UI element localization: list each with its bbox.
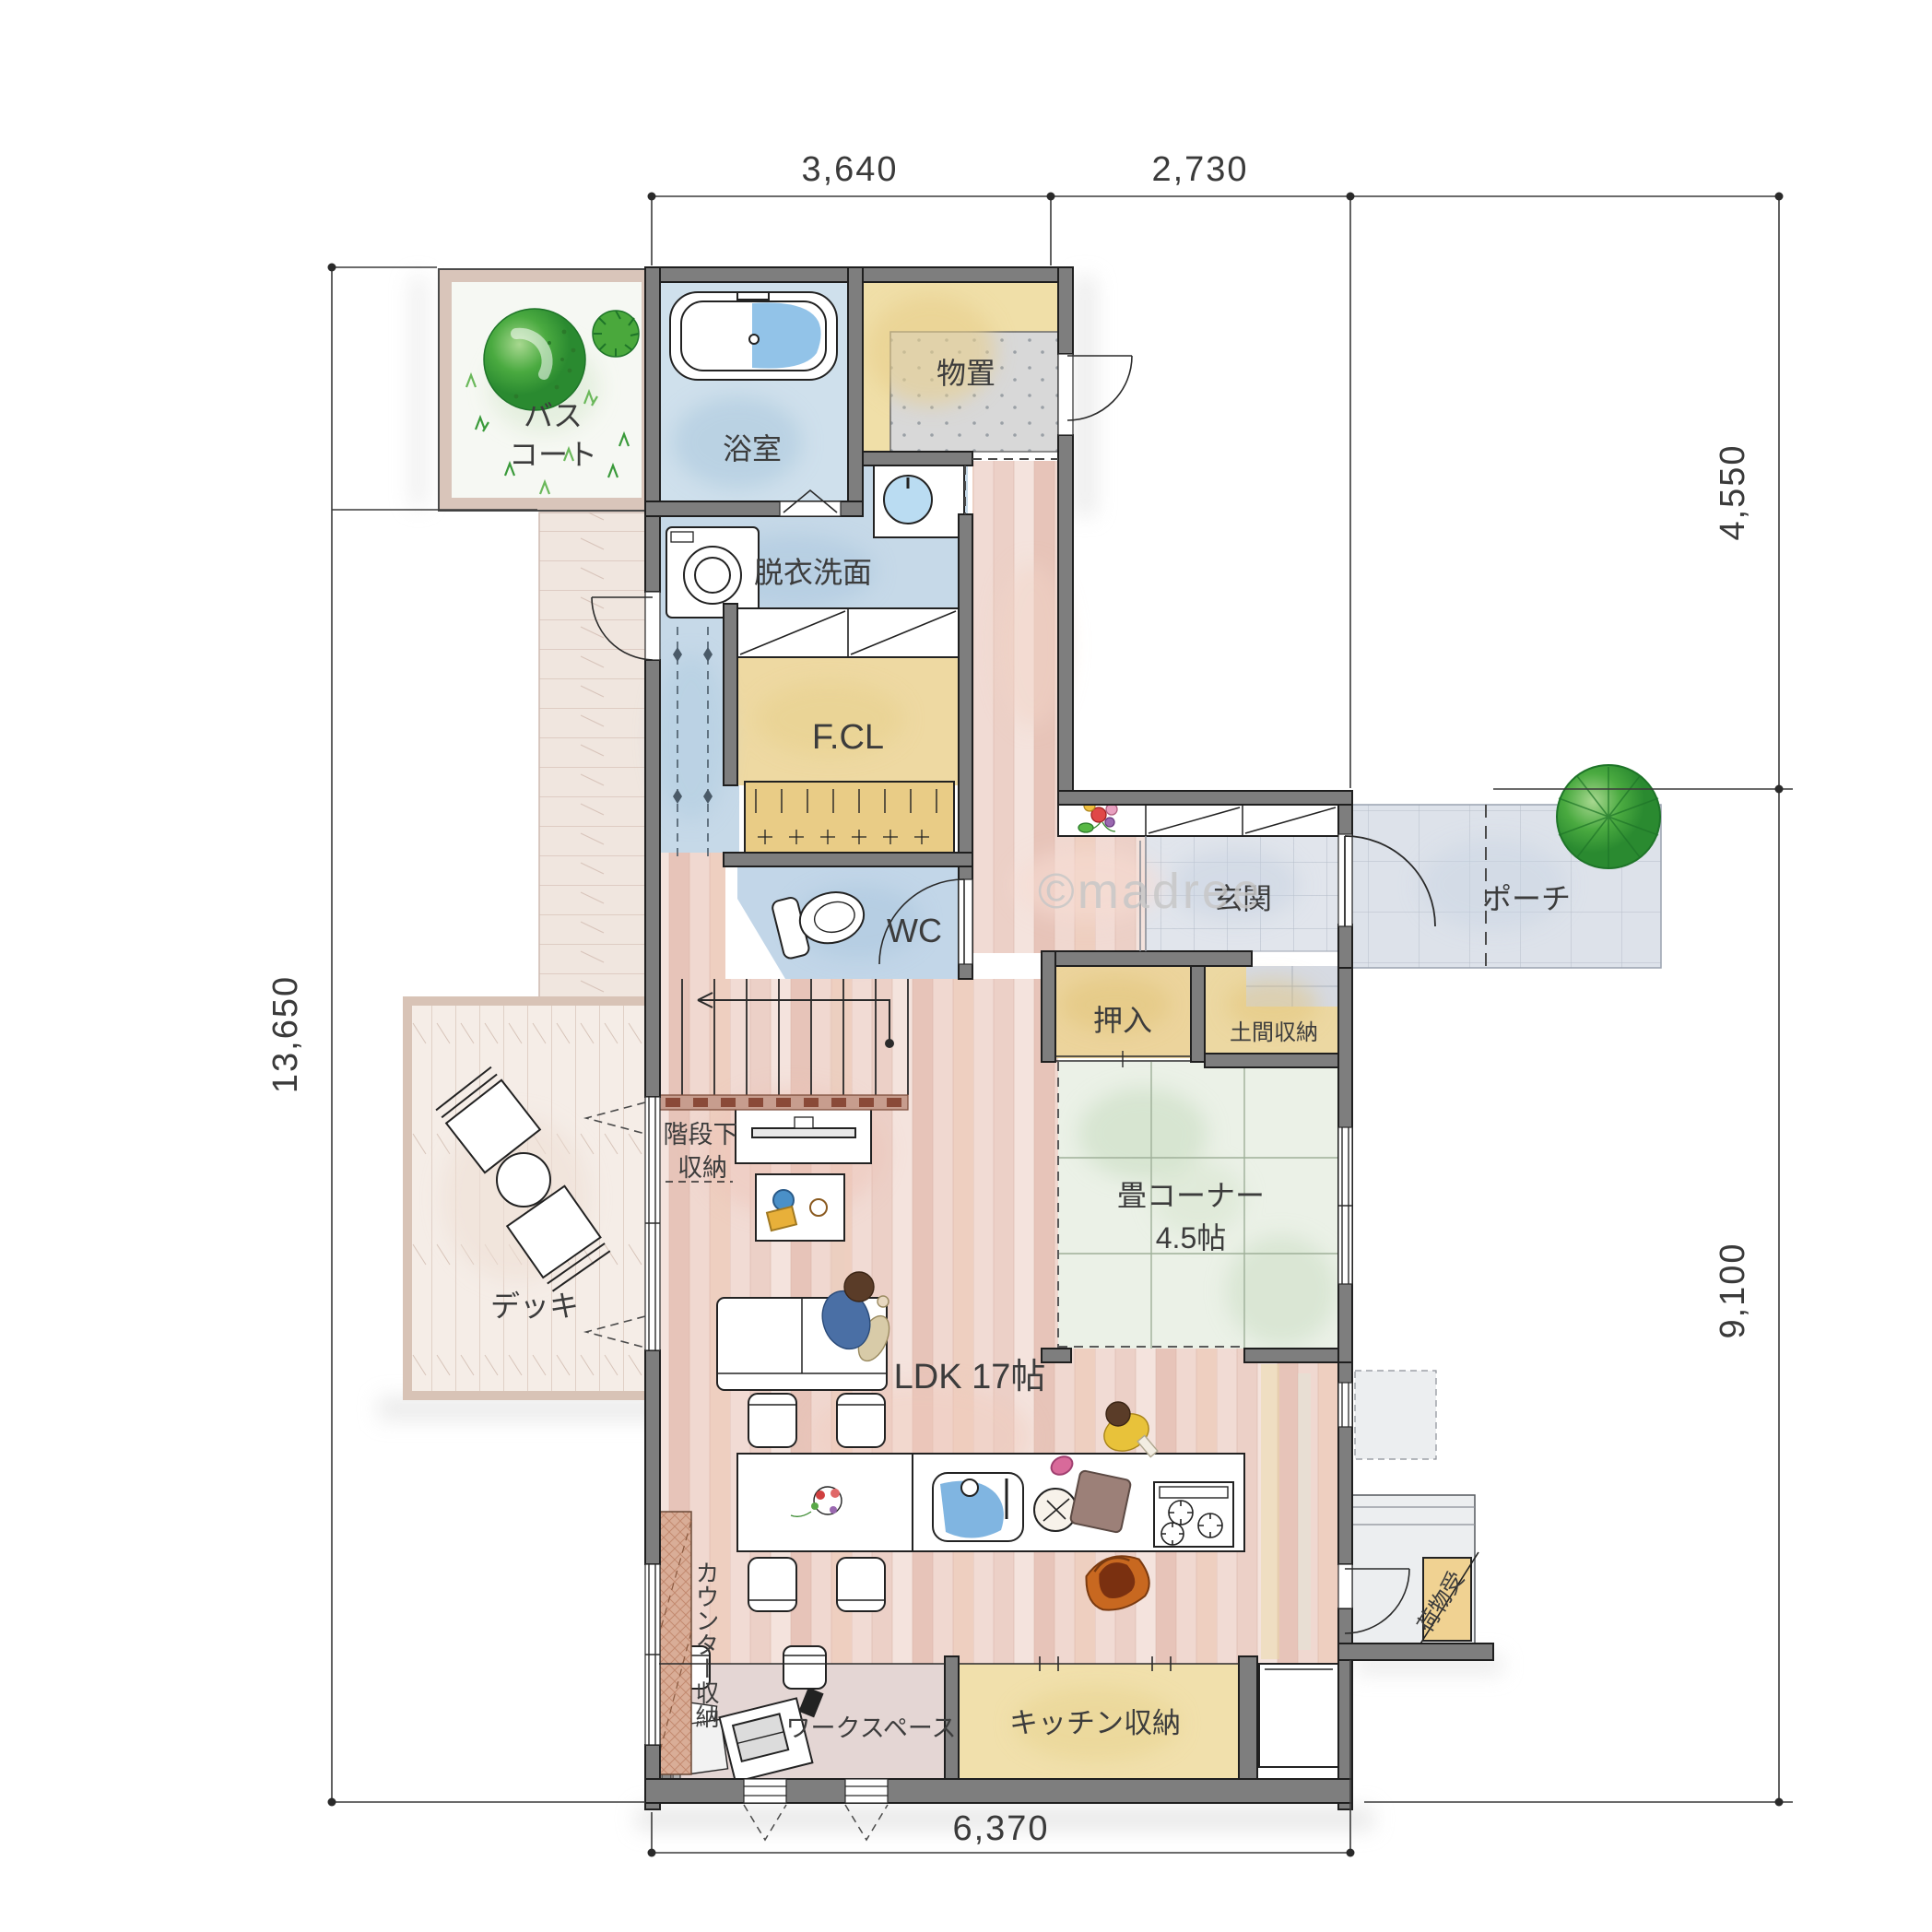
watermark: ©madree	[1038, 864, 1263, 919]
tv-board-icon	[736, 1106, 871, 1163]
kitchen-storage-label: キッチン収納	[1009, 1707, 1181, 1739]
tatami-size: 4.5帖	[1156, 1221, 1227, 1255]
under-stair-label: 階段下	[664, 1121, 738, 1149]
washroom-label: 脱衣洗面	[754, 556, 872, 589]
dim-top-left: 3,640	[801, 150, 898, 189]
dim-bottom: 6,370	[952, 1809, 1049, 1848]
tatami-label: 畳コーナー	[1117, 1179, 1265, 1212]
floor-plan-drawing: バス コート 浴室 物置 脱衣洗面 F.CL WC 玄関 ポーチ 押入 土間収納…	[0, 0, 1932, 1932]
fcl-label: F.CL	[812, 718, 884, 757]
washroom-sink-icon	[874, 464, 964, 537]
bathroom-label: 浴室	[723, 432, 782, 465]
floor-plan: バス コート 浴室 物置 脱衣洗面 F.CL WC 玄関 ポーチ 押入 土間収納…	[0, 0, 1932, 1932]
bush-icon	[484, 309, 585, 410]
dim-top-right: 2,730	[1151, 150, 1248, 189]
counter-storage-unit	[660, 1512, 691, 1774]
bath-court-label: バス	[524, 399, 583, 432]
workspace-label: ワークスペース	[786, 1714, 957, 1742]
dining-table-icon	[737, 1454, 913, 1551]
storage-label: 物置	[937, 357, 995, 390]
bath-court-label-2: コート	[509, 438, 597, 471]
fridge-icon	[1259, 1664, 1338, 1767]
wc-label: WC	[887, 912, 942, 949]
deck-label: デッキ	[490, 1290, 579, 1323]
stove-icon	[1154, 1482, 1233, 1547]
dim-right-upper: 4,550	[1714, 443, 1752, 540]
counter-storage-label: カウンター収納	[692, 1561, 720, 1728]
under-stair-label-2: 収納	[677, 1154, 727, 1182]
kitchen-counter-icon	[913, 1453, 1244, 1551]
bathtub-icon	[670, 292, 837, 380]
dim-right-lower: 9,100	[1714, 1242, 1752, 1338]
porch-label: ポーチ	[1482, 882, 1571, 915]
washing-machine-icon	[666, 527, 759, 618]
oshiire-label: 押入	[1093, 1004, 1152, 1037]
walkway	[539, 512, 645, 1001]
ldk-label: LDK 17帖	[894, 1358, 1046, 1396]
dim-left: 13,650	[266, 975, 305, 1093]
coffee-table-icon	[756, 1174, 844, 1241]
doma-label: 土間収納	[1230, 1020, 1318, 1045]
deck-table-icon	[497, 1153, 550, 1207]
porch-tree-icon	[1557, 765, 1660, 868]
